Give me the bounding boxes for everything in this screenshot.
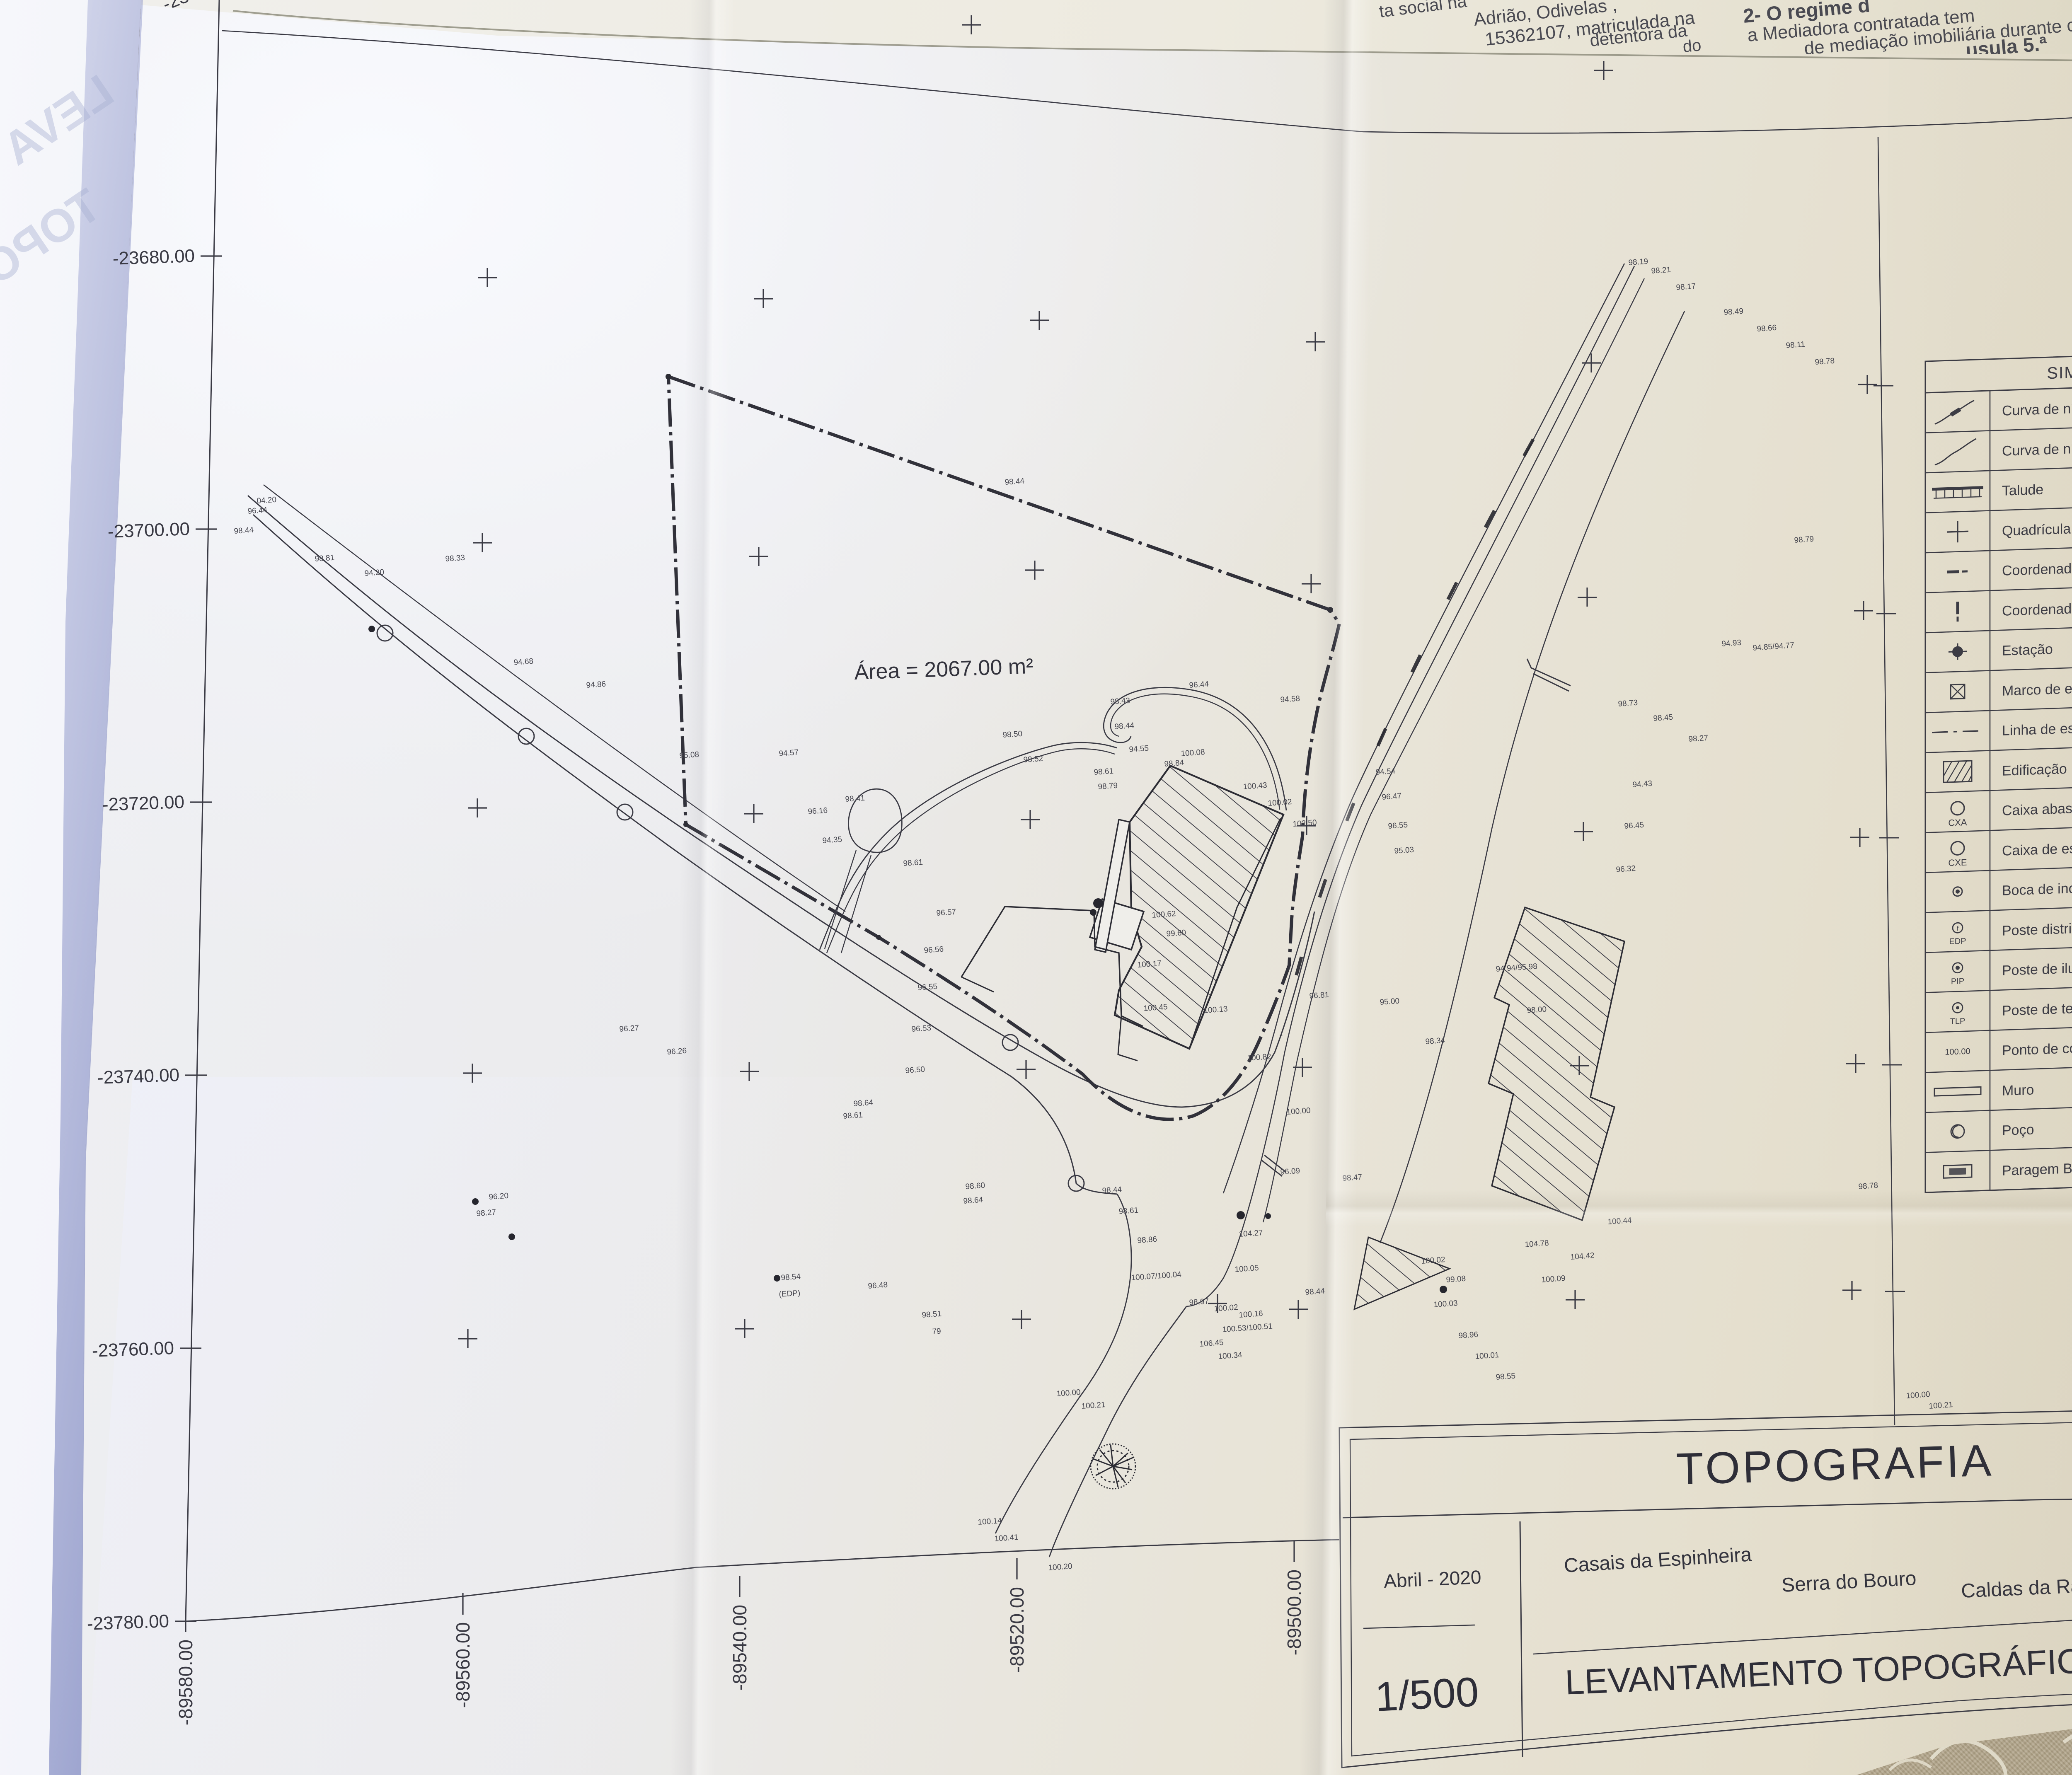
svg-text:98.44: 98.44 [1114,721,1135,731]
svg-text:98.73: 98.73 [1618,699,1638,709]
svg-text:96.09: 96.09 [1280,1167,1300,1177]
svg-text:98.61: 98.61 [903,858,923,868]
svg-text:96.53: 96.53 [911,1024,932,1034]
svg-text:104.78: 104.78 [1525,1239,1549,1249]
svg-text:96.55: 96.55 [917,982,938,992]
svg-text:98.51: 98.51 [922,1310,942,1320]
svg-text:94.54: 94.54 [1375,767,1396,777]
svg-text:1/500: 1/500 [1374,1669,1480,1720]
svg-text:94.43: 94.43 [1632,779,1653,789]
svg-text:96.32: 96.32 [1616,864,1636,874]
svg-text:98.45: 98.45 [1653,713,1673,723]
svg-text:Casais da Espinheira: Casais da Espinheira [1563,1543,1752,1577]
svg-text:100.16: 100.16 [1239,1309,1263,1320]
svg-text:96.48: 96.48 [868,1281,888,1291]
svg-text:106.45: 106.45 [1199,1338,1224,1349]
svg-text:98.54: 98.54 [781,1272,801,1282]
svg-text:98.44: 98.44 [1102,1185,1122,1195]
svg-text:99.60: 99.60 [1166,929,1186,938]
svg-text:104.42: 104.42 [1570,1251,1595,1262]
svg-text:100.45: 100.45 [1143,1003,1168,1013]
svg-text:100.01: 100.01 [1475,1351,1499,1361]
svg-text:-23760.00: -23760.00 [92,1338,174,1361]
svg-text:98.61: 98.61 [1118,1206,1139,1216]
svg-text:-23780.00: -23780.00 [87,1611,169,1634]
svg-text:94.20: 94.20 [364,568,385,578]
svg-text:94.93: 94.93 [1721,638,1742,648]
svg-text:94.68: 94.68 [513,657,534,667]
svg-text:100.17: 100.17 [1137,959,1162,970]
svg-text:95.03: 95.03 [1394,846,1414,856]
svg-text:96.27: 96.27 [619,1024,639,1034]
svg-text:100.20: 100.20 [1048,1562,1072,1572]
svg-text:100.13: 100.13 [1203,1005,1228,1015]
svg-text:98.44: 98.44 [1005,477,1025,487]
svg-text:94.57: 94.57 [779,748,799,758]
svg-text:100.07/100.04: 100.07/100.04 [1131,1270,1182,1282]
svg-text:98.11: 98.11 [1786,340,1805,350]
svg-text:-89560.00: -89560.00 [452,1622,474,1708]
svg-text:Área = 2067.00 m²: Área = 2067.00 m² [854,654,1034,684]
svg-text:96.16: 96.16 [808,806,828,816]
svg-text:-89520.00: -89520.00 [1006,1587,1028,1673]
svg-text:98.27: 98.27 [1688,734,1709,744]
svg-text:98.41: 98.41 [845,794,865,804]
svg-text:100.43: 100.43 [1243,781,1267,791]
svg-text:100.41: 100.41 [994,1533,1019,1543]
svg-text:98.60: 98.60 [965,1181,985,1191]
svg-text:98.96: 98.96 [1458,1330,1479,1340]
svg-text:98.79: 98.79 [1098,781,1118,791]
svg-text:94.35: 94.35 [822,835,842,845]
svg-text:100.08: 100.08 [1181,748,1205,758]
svg-text:96.55: 96.55 [1388,821,1408,831]
svg-text:104.27: 104.27 [1239,1228,1263,1239]
svg-text:98.50: 98.50 [1002,730,1023,740]
svg-text:94.58: 94.58 [1280,694,1300,704]
svg-text:100.53/100.51: 100.53/100.51 [1222,1322,1273,1334]
svg-text:-89580.00: -89580.00 [175,1640,196,1725]
svg-text:98.84: 98.84 [1164,759,1184,769]
svg-text:100.82: 100.82 [1247,1052,1271,1063]
svg-text:98.81: 98.81 [315,554,335,563]
svg-text:79: 79 [932,1327,942,1336]
svg-text:100.62: 100.62 [1152,909,1176,920]
svg-text:99.08: 99.08 [1446,1274,1466,1284]
svg-text:98.44: 98.44 [234,526,254,536]
svg-text:98.21: 98.21 [1651,266,1671,276]
svg-text:98.55: 98.55 [1496,1372,1516,1382]
svg-text:94.55: 94.55 [1129,744,1149,754]
svg-text:96.44: 96.44 [1189,680,1209,690]
svg-text:98.97: 98.97 [1189,1297,1209,1307]
svg-text:100.03: 100.03 [1433,1299,1458,1309]
svg-text:100.02: 100.02 [1268,798,1292,808]
svg-text:98.00: 98.00 [1527,1005,1547,1015]
svg-text:100.14: 100.14 [978,1516,1002,1527]
svg-text:100.00: 100.00 [1286,1106,1311,1117]
svg-text:98.43: 98.43 [1110,696,1130,706]
svg-text:100.34: 100.34 [1218,1351,1243,1361]
svg-text:100.21: 100.21 [1081,1400,1106,1411]
svg-text:Abril - 2020: Abril - 2020 [1383,1566,1481,1592]
svg-text:98.66: 98.66 [1757,324,1777,334]
svg-text:100.02: 100.02 [1421,1255,1445,1266]
svg-text:100.05: 100.05 [1234,1264,1259,1274]
svg-text:96.20: 96.20 [489,1192,509,1202]
svg-text:98.64: 98.64 [963,1196,983,1206]
svg-text:98.61: 98.61 [1094,767,1114,777]
svg-text:96.56: 96.56 [924,945,944,955]
svg-text:-89540.00: -89540.00 [729,1605,750,1690]
svg-text:04.20: 04.20 [257,496,277,505]
svg-text:96.45: 96.45 [1624,821,1644,831]
svg-text:98.33: 98.33 [445,554,465,563]
svg-text:98.78: 98.78 [1815,357,1835,367]
svg-text:98.49: 98.49 [1723,307,1744,317]
svg-text:98.52: 98.52 [1023,754,1043,764]
svg-text:(EDP): (EDP) [779,1289,801,1299]
svg-text:98.19: 98.19 [1628,257,1648,267]
svg-text:95.00: 95.00 [1380,997,1400,1007]
svg-text:-23720.00: -23720.00 [102,792,185,815]
svg-text:98.79: 98.79 [1794,535,1814,545]
svg-text:100.09: 100.09 [1541,1274,1566,1284]
svg-text:96.47: 96.47 [1382,792,1402,802]
svg-text:96.44: 96.44 [247,506,268,516]
svg-text:94.85/94.77: 94.85/94.77 [1752,641,1795,653]
svg-text:98.86: 98.86 [1137,1235,1157,1245]
svg-text:98.34: 98.34 [1425,1036,1445,1046]
svg-text:98.27: 98.27 [476,1208,496,1218]
svg-text:98.61: 98.61 [843,1111,863,1121]
svg-text:96.57: 96.57 [936,908,956,918]
svg-text:-23700.00: -23700.00 [107,519,190,542]
svg-text:100.00: 100.00 [1056,1388,1081,1398]
svg-text:98.64: 98.64 [853,1098,874,1108]
svg-text:96.50: 96.50 [905,1065,925,1075]
svg-text:98.17: 98.17 [1676,282,1696,292]
svg-text:-23680.00: -23680.00 [112,246,195,269]
svg-text:-23740.00: -23740.00 [97,1065,180,1088]
svg-text:100.02: 100.02 [1214,1303,1238,1313]
svg-text:94.86: 94.86 [586,680,606,690]
